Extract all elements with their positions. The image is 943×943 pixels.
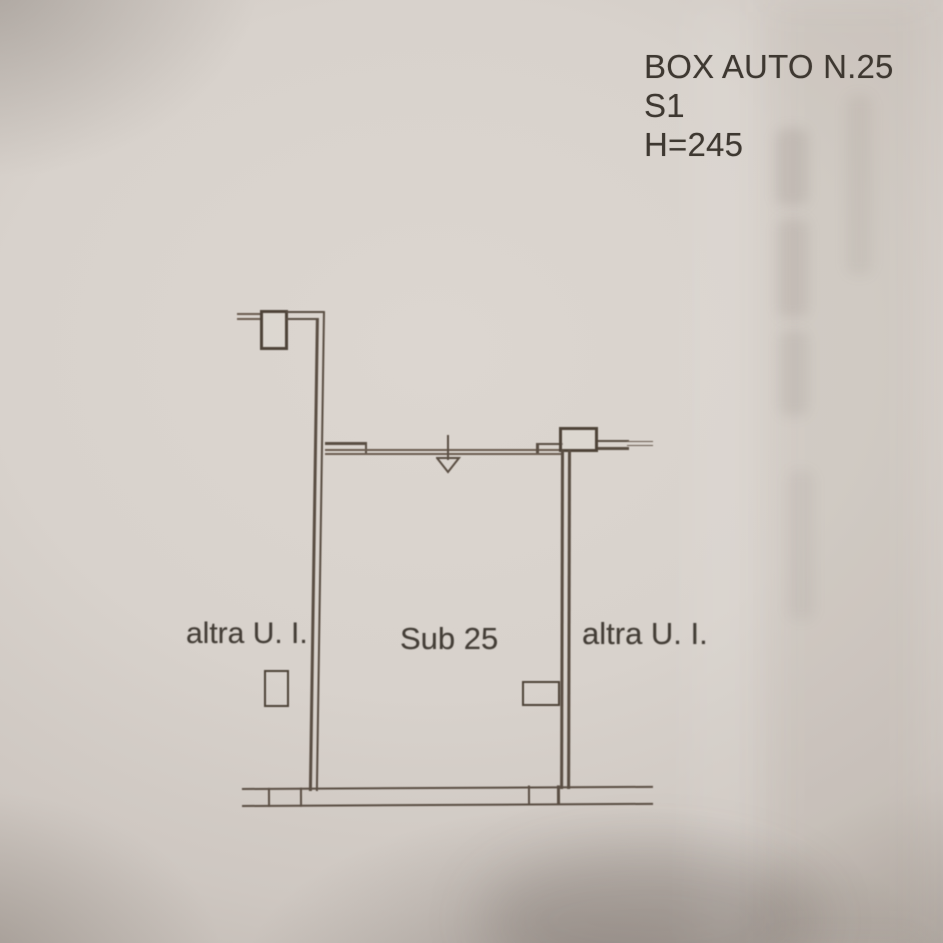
base-tick-2 (299, 787, 302, 807)
front-wall-segment-top (325, 442, 367, 445)
left-wall (308, 311, 325, 791)
right-unit-label: altra U. I. (582, 616, 708, 652)
base-line-top (242, 785, 653, 790)
base-tick-3 (527, 785, 530, 805)
down-arrow-icon (436, 457, 464, 475)
left-unit-label: altra U. I. (186, 617, 308, 651)
right-fixture-rect (522, 681, 560, 706)
scanned-floor-plan-photo: BOX AUTO N.25 S1 H=245 (0, 0, 943, 943)
right-link-line-bottom (598, 447, 629, 450)
right-ext-line-top (627, 441, 653, 443)
entrance-arrow (434, 434, 462, 474)
right-wall-outer-line (567, 450, 570, 789)
base-line-bottom (242, 802, 653, 807)
right-ext-line-bottom (627, 445, 653, 447)
right-wall (560, 450, 571, 789)
front-wall-tick (365, 442, 368, 453)
left-fixture-rect (264, 670, 289, 707)
floor-plan-drawing: altra U. I. Sub 25 altra U. I. (0, 0, 943, 943)
sub-label: Sub 25 (400, 621, 498, 657)
left-pillar (260, 310, 288, 350)
right-link-line-top (598, 440, 629, 443)
base-tick-1 (267, 787, 270, 807)
base-wall (242, 785, 653, 809)
base-tick-4 (557, 785, 560, 805)
right-pillar (559, 427, 598, 452)
right-wall-inner-line (560, 450, 563, 789)
top-corner-inner-line (286, 318, 318, 321)
